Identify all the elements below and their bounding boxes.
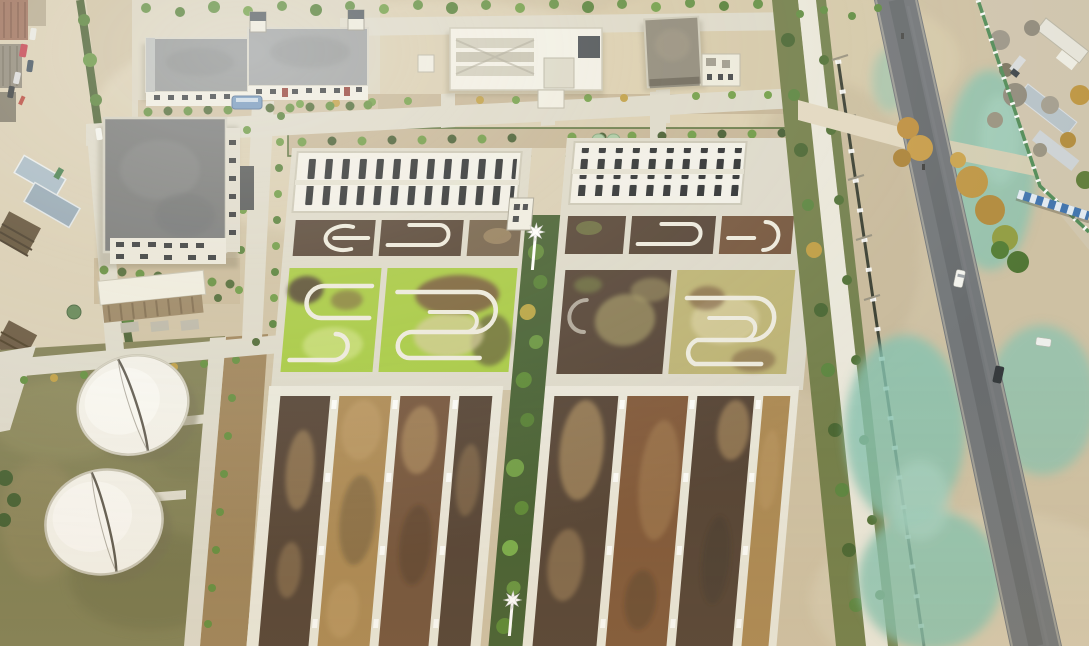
aerial-photo-wastewater-plant [0, 0, 1089, 646]
color-cast [0, 0, 1089, 646]
photo-canvas [0, 0, 1089, 646]
